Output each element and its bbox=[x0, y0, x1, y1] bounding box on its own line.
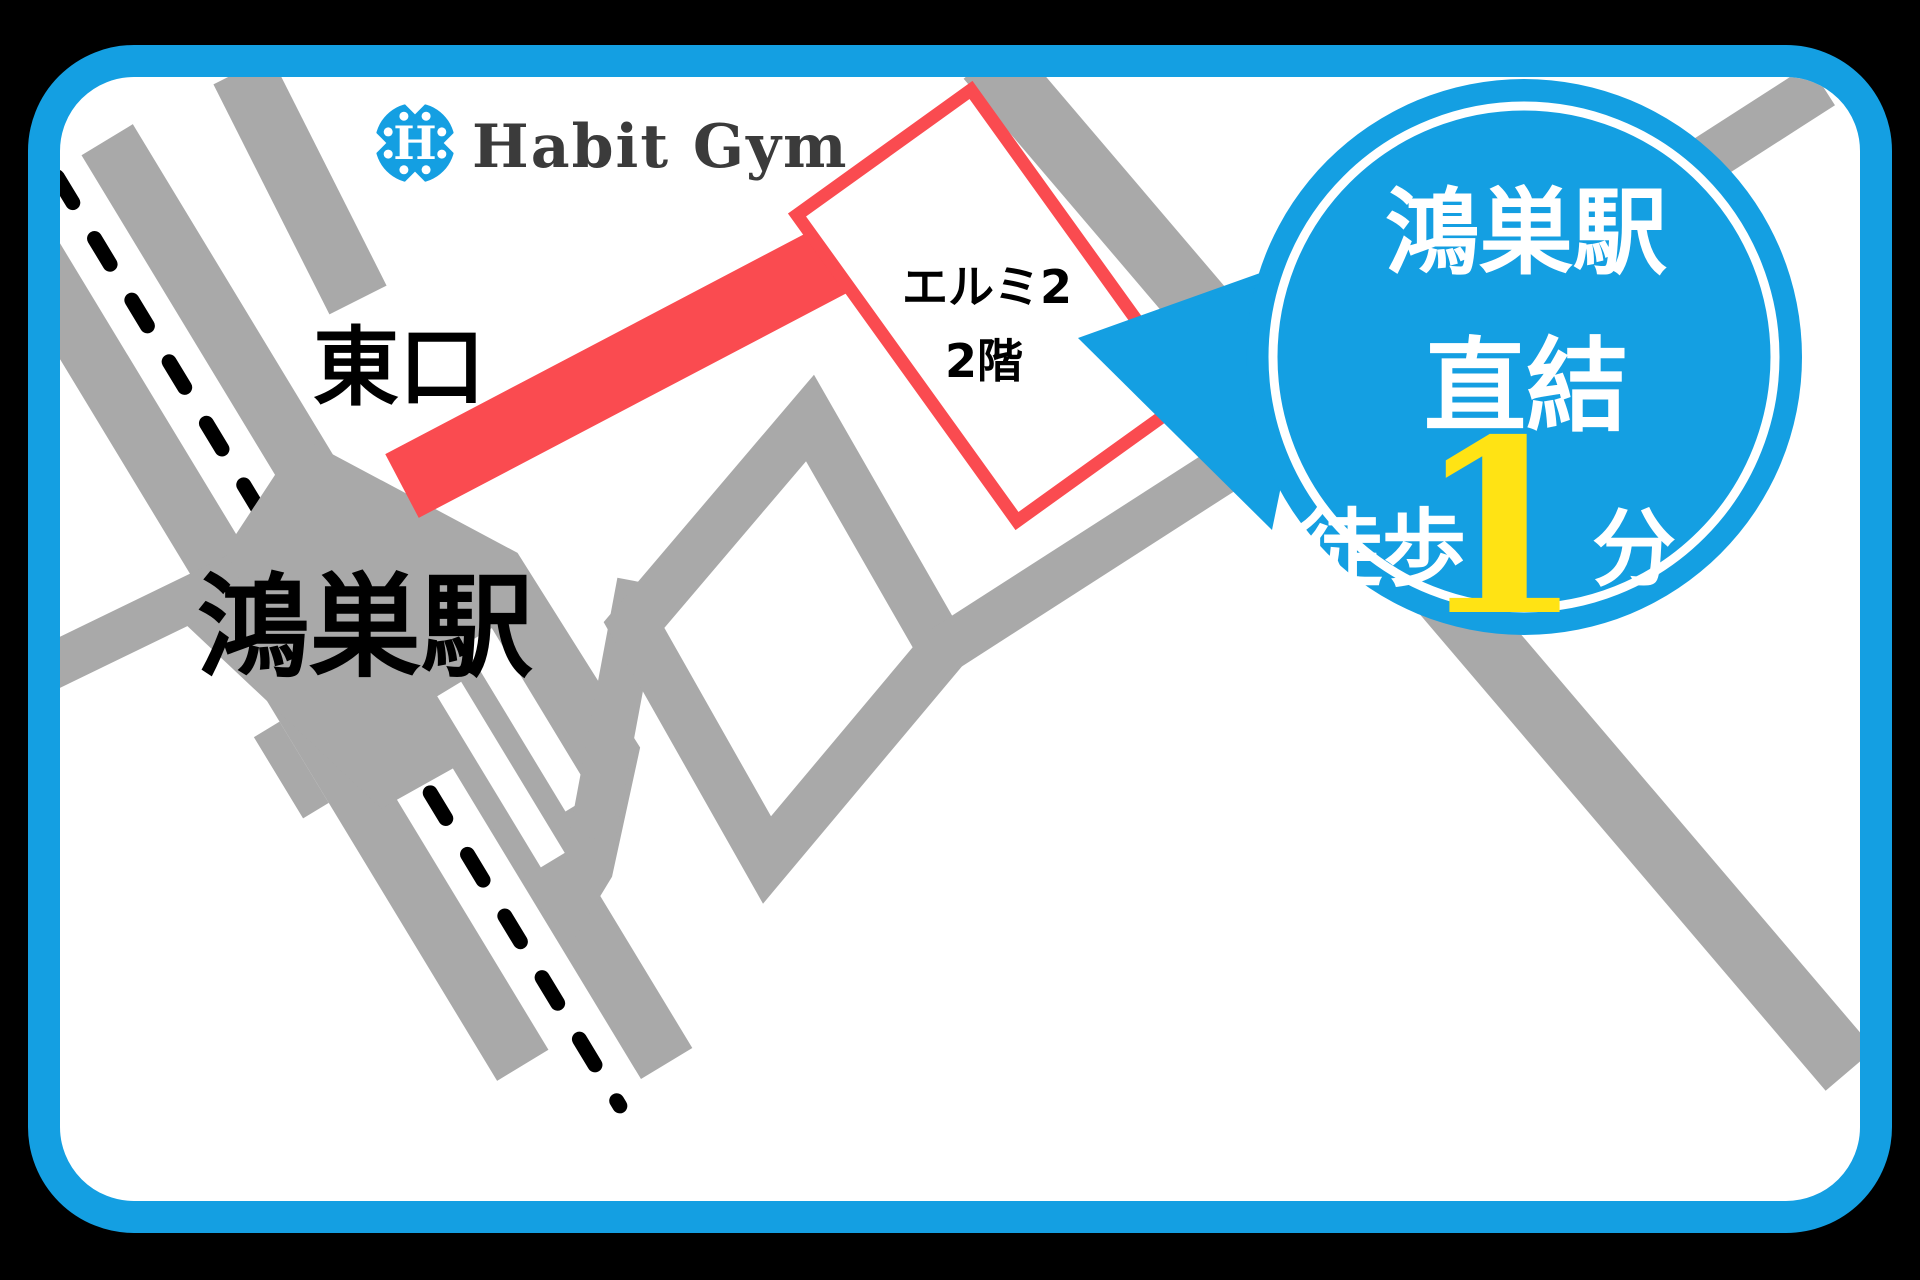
building-label-line1: エルミ2 bbox=[902, 260, 1072, 314]
badge-minutes-unit: 分 bbox=[1592, 499, 1676, 598]
station-label: 鴻巣駅 bbox=[197, 562, 533, 693]
map-canvas: エルミ2 2階 東口 鴻巣駅 鴻巣駅 直結 徒歩 1 分 bbox=[0, 0, 1920, 1280]
east-exit-label: 東口 bbox=[313, 317, 485, 418]
badge-minutes-value: 1 bbox=[1417, 387, 1584, 669]
building-label-line2: 2階 bbox=[945, 334, 1023, 388]
access-map-card: エルミ2 2階 東口 鴻巣駅 鴻巣駅 直結 徒歩 1 分 bbox=[0, 0, 1920, 1280]
logo-icon-letter: H bbox=[393, 116, 436, 170]
logo-wordmark: Habit Gym bbox=[472, 112, 849, 182]
badge-station-text: 鴻巣駅 bbox=[1385, 178, 1667, 288]
